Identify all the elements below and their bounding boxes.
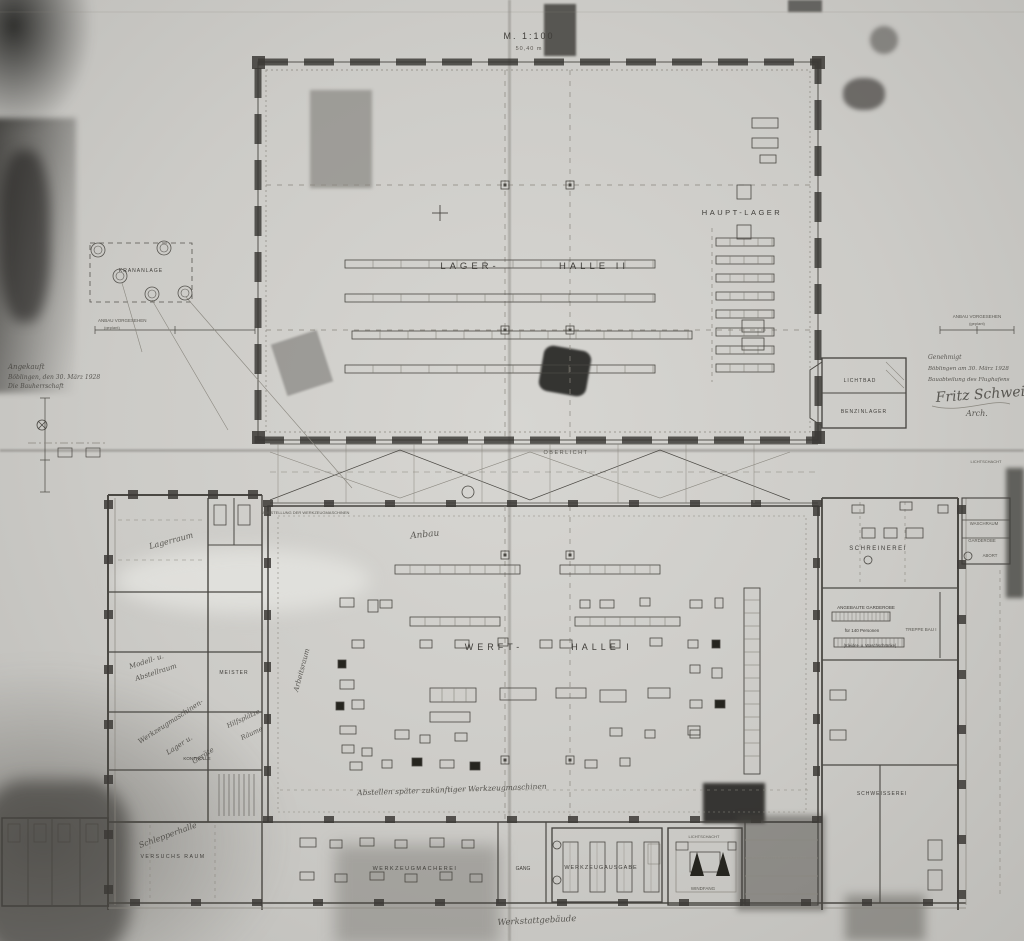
haupt-lager-label: HAUPT-LAGER <box>702 208 782 217</box>
krananlage-label: KRANANLAGE <box>119 268 163 274</box>
hw-arbeitsraum: Arbeitsraum <box>292 647 312 693</box>
wall-pilasters <box>104 56 966 906</box>
anbau-right-note1: ANBAU VORGESEHEN <box>953 314 1002 319</box>
door-leaf-right <box>716 852 730 876</box>
garderobe-klein-label: GARDEROBE <box>968 538 996 543</box>
hall1-label-left: WERFT- <box>465 642 524 652</box>
hw-wzm2: Lager u. <box>164 734 194 757</box>
stamp-approval-line3: Bauabteilung des Flughafens <box>927 377 1010 383</box>
benzinlager-label: BENZINLAGER <box>841 409 887 415</box>
hall1-label-right: HALLE I <box>571 642 633 652</box>
stamp-approval-line2: Böblingen am 30. März 1928 <box>927 366 1009 372</box>
hw-center-note: Anbau <box>409 528 440 541</box>
gang-label: GANG <box>516 866 531 872</box>
lichtbad-label: LICHTBAD <box>844 378 877 384</box>
scale-sublabel: 50,40 m <box>516 46 543 52</box>
schreinerei-label: SCHREINEREI <box>849 546 907 552</box>
stamp-approval-line1: Genehmigt <box>928 354 962 361</box>
southwest-annex <box>2 818 108 906</box>
hw-lagerraum: Lagerraum <box>147 530 194 551</box>
hall2-label-right: HALLE II <box>559 261 629 272</box>
lichtschacht-label: LICHTSCHACHT <box>689 834 720 839</box>
lichtschacht-ost-label: LICHTSCHACHT <box>971 459 1002 464</box>
hw-hilfs2: Räume <box>239 725 264 743</box>
door-leaf-left <box>690 852 704 876</box>
stamp-purchase-line3: Die Bauherrschaft <box>7 383 64 390</box>
right-wing-structure <box>810 358 1010 910</box>
stamp-purchase-line2: Böblingen, den 30. März 1928 <box>7 374 100 381</box>
windfang-label: WINDFANG <box>691 886 716 891</box>
anbau-left-note1: ANBAU VORGESEHEN <box>98 318 147 323</box>
versuchsraum-label: VERSUCHS RAUM <box>140 854 205 860</box>
scale-label: M. 1:100 <box>503 31 554 41</box>
hall2-structure <box>258 62 818 440</box>
abort-label: ABORT <box>983 553 998 558</box>
meister-label: MEISTER <box>219 670 248 676</box>
hall2-label-left: LAGER- <box>440 261 499 272</box>
hw-wzm1: Werkzeugmaschinen- <box>137 697 205 745</box>
hw-werkstatt: Werkstattgebäude <box>497 914 576 928</box>
garderobe-line3: (Kleider- u. Waschschränke) <box>844 643 897 648</box>
scanned-floor-plan: M. 1:100 50,40 m LAGER- HALLE II HAUPT-L… <box>0 0 1024 941</box>
werkzeugmacherei-label: WERKZEUGMACHEREI <box>373 866 458 872</box>
storage-racks <box>219 238 904 892</box>
treppe-label: TREPPE BAU I <box>905 627 936 632</box>
maschinenliste-label: AUFSTELLUNG DER WERKZEUGMASCHINEN <box>263 510 350 515</box>
stamp-purchase-line1: Angekauft <box>7 363 45 371</box>
hw-machines-note: Abstellen später zukünftiger Werkzeugmas… <box>356 782 547 798</box>
hw-schlepper: Schlepperhalle <box>138 820 199 849</box>
hw-wzm3: Geräte <box>191 746 216 766</box>
floor-plan-drawing: M. 1:100 50,40 m LAGER- HALLE II HAUPT-L… <box>0 0 1024 941</box>
oelkeller-label: ANGEBAUTER OELKELLER <box>752 855 806 860</box>
garderobe-line1: ANGEBAUTE GARDEROBE <box>837 605 895 610</box>
south-rooms-structure <box>108 822 966 908</box>
left-wing-structure <box>108 495 268 910</box>
hall1-structure <box>268 506 818 822</box>
waschraum-label: WASCHRAUM <box>970 521 999 526</box>
misc-details <box>37 181 972 884</box>
signature-title: Arch. <box>965 409 988 418</box>
anbau-left-note2: (geplant) <box>104 325 120 330</box>
machine-symbols <box>300 118 948 882</box>
site-marks <box>28 243 1014 492</box>
schweisserei-label: SCHWEISSEREI <box>857 791 907 797</box>
signature: Fritz Schweizer <box>934 382 1024 406</box>
garderobe-line2: für 140 Personen <box>845 628 880 633</box>
oberlicht-label: OBERLICHT <box>544 450 589 456</box>
werkzeugausgabe-label: WERKZEUGAUSGABE <box>564 865 637 871</box>
anbau-right-note2: (geplant) <box>969 321 985 326</box>
